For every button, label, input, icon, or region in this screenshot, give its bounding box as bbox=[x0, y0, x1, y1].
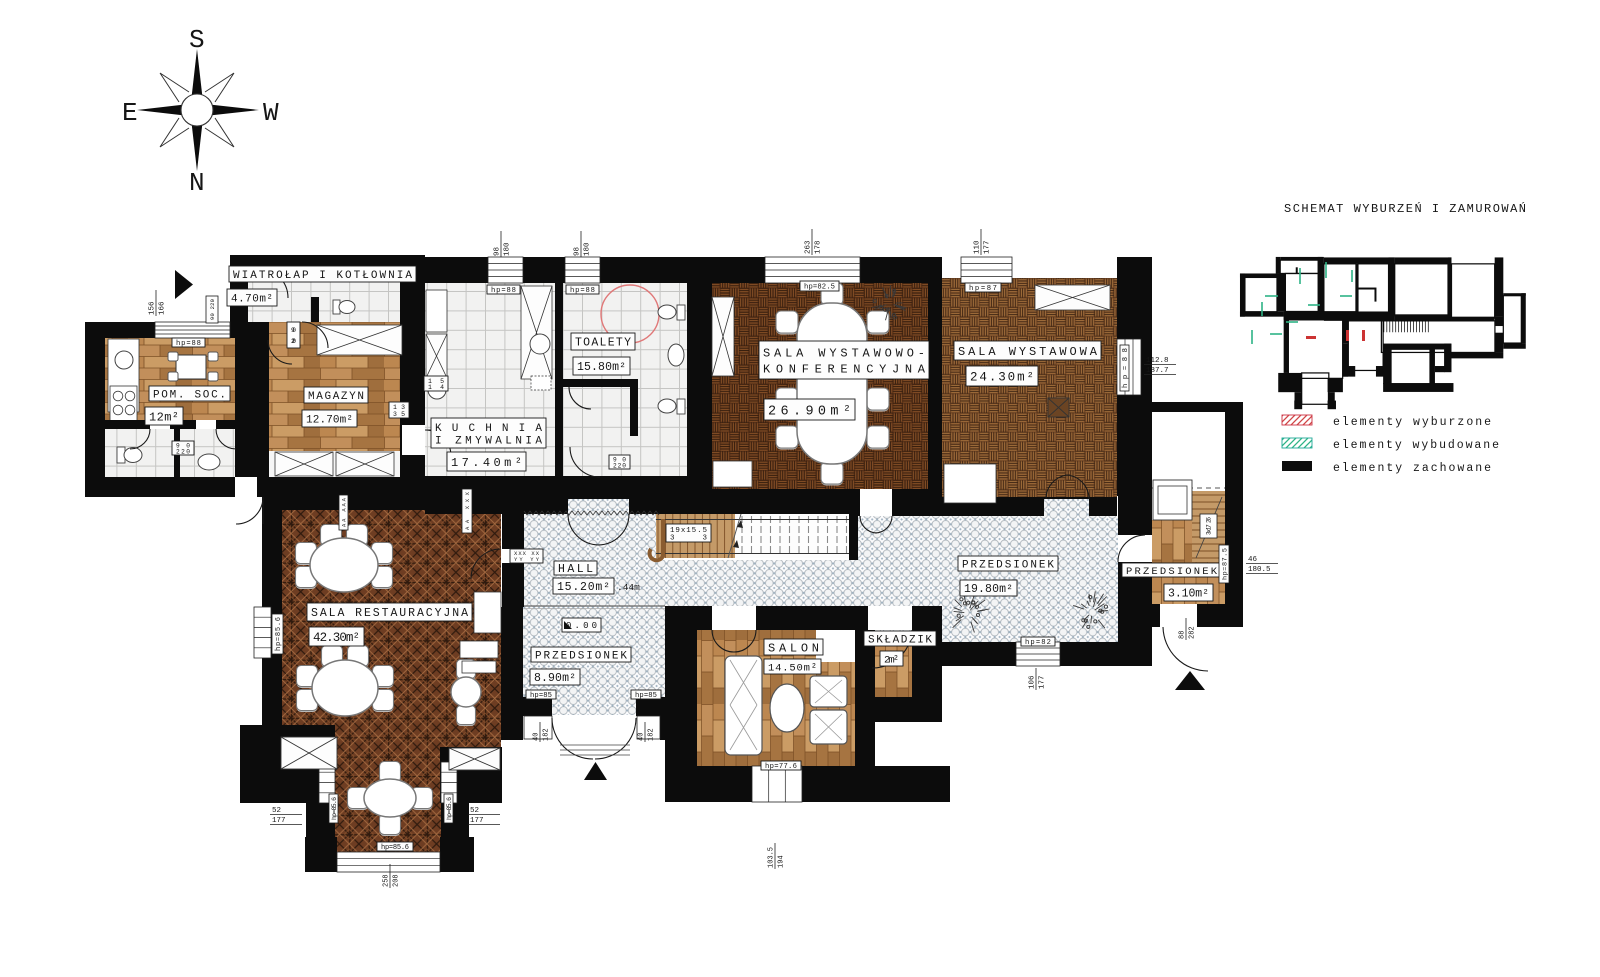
svg-text:182: 182 bbox=[543, 728, 551, 741]
svg-text:177: 177 bbox=[1039, 675, 1047, 689]
svg-text:19.80m²: 19.80m² bbox=[964, 583, 1013, 596]
svg-text:hp=85.6: hp=85.6 bbox=[446, 797, 453, 820]
svg-text:AA AAA: AA AAA bbox=[341, 497, 348, 527]
svg-text:E: E bbox=[122, 98, 138, 128]
svg-text:hp=85.6: hp=85.6 bbox=[275, 617, 283, 651]
svg-text:220: 220 bbox=[291, 338, 296, 345]
svg-text:POM. SOC.: POM. SOC. bbox=[153, 390, 226, 402]
svg-text:N: N bbox=[189, 168, 205, 198]
svg-text:SALA RESTAURACYJNA: SALA RESTAURACYJNA bbox=[311, 607, 468, 620]
svg-text:52: 52 bbox=[272, 807, 281, 815]
svg-text:hp=82.5: hp=82.5 bbox=[804, 284, 835, 292]
svg-text:15.80m²: 15.80m² bbox=[577, 361, 626, 374]
svg-text:PRZEDSIONEK: PRZEDSIONEK bbox=[535, 651, 627, 663]
svg-text:3.10m²: 3.10m² bbox=[1168, 588, 1209, 601]
svg-text:W: W bbox=[263, 98, 279, 128]
svg-text:12m²: 12m² bbox=[149, 410, 179, 424]
svg-text:hp=88: hp=88 bbox=[176, 340, 201, 348]
svg-text:180: 180 bbox=[504, 242, 512, 256]
svg-text:98: 98 bbox=[494, 247, 502, 256]
svg-text:90: 90 bbox=[291, 327, 296, 334]
svg-text:88: 88 bbox=[1179, 631, 1187, 639]
svg-text:194: 194 bbox=[778, 855, 786, 868]
svg-text:hp=82: hp=82 bbox=[1025, 639, 1051, 647]
svg-text:elementy zachowane: elementy zachowane bbox=[1333, 462, 1491, 475]
svg-text:hp=85: hp=85 bbox=[530, 692, 552, 700]
svg-text:hp=87: hp=87 bbox=[969, 285, 997, 293]
svg-text:220: 220 bbox=[613, 462, 626, 469]
svg-text:103.5: 103.5 bbox=[768, 847, 776, 868]
svg-text:elementy wyburzone: elementy wyburzone bbox=[1333, 416, 1491, 429]
svg-text:SKŁADZIK: SKŁADZIK bbox=[868, 635, 932, 647]
svg-text:187.7: 187.7 bbox=[1146, 367, 1169, 375]
svg-text:263: 263 bbox=[805, 240, 813, 254]
svg-text:TOALETY: TOALETY bbox=[575, 337, 631, 350]
svg-text:180: 180 bbox=[584, 242, 592, 256]
svg-text:3x17 26: 3x17 26 bbox=[1206, 517, 1213, 535]
svg-text:156: 156 bbox=[149, 301, 157, 315]
svg-text:S: S bbox=[189, 25, 205, 55]
svg-text:258: 258 bbox=[383, 874, 391, 887]
svg-text:PRZEDSIONEK: PRZEDSIONEK bbox=[962, 560, 1054, 572]
svg-text:40: 40 bbox=[638, 733, 646, 741]
svg-text:hp=85.6: hp=85.6 bbox=[331, 797, 338, 820]
svg-text:MAGAZYN: MAGAZYN bbox=[308, 391, 364, 403]
svg-text:177: 177 bbox=[272, 817, 286, 825]
svg-text:110: 110 bbox=[974, 240, 982, 254]
svg-text:46: 46 bbox=[1248, 556, 1258, 564]
svg-text:182: 182 bbox=[648, 728, 656, 741]
svg-text:hp=88: hp=88 bbox=[491, 287, 516, 295]
svg-text:220: 220 bbox=[176, 448, 190, 455]
svg-text:PRZEDSIONEK: PRZEDSIONEK bbox=[1126, 566, 1218, 578]
svg-text:hp=77.6: hp=77.6 bbox=[765, 763, 797, 771]
svg-text:I ZMYWALNIA: I ZMYWALNIA bbox=[435, 436, 542, 448]
svg-text:hp=87.5: hp=87.5 bbox=[1221, 548, 1229, 580]
svg-text:177: 177 bbox=[470, 817, 484, 825]
svg-text:14.50m²: 14.50m² bbox=[768, 662, 817, 674]
svg-text:hp=88: hp=88 bbox=[570, 287, 595, 295]
svg-text:90 220: 90 220 bbox=[209, 299, 216, 320]
svg-text:SALA WYSTAWOWO-: SALA WYSTAWOWO- bbox=[763, 347, 925, 361]
svg-text:40: 40 bbox=[533, 733, 541, 741]
svg-text:52: 52 bbox=[470, 807, 479, 815]
svg-text:177: 177 bbox=[984, 240, 992, 254]
svg-text:166: 166 bbox=[159, 301, 167, 315]
svg-text:24.30m²: 24.30m² bbox=[970, 371, 1034, 385]
svg-text:8.90m²: 8.90m² bbox=[534, 672, 576, 685]
svg-text:4.70m²: 4.70m² bbox=[231, 294, 273, 306]
svg-text:98: 98 bbox=[574, 247, 582, 256]
svg-text:282: 282 bbox=[1189, 626, 1197, 639]
svg-text:208: 208 bbox=[393, 874, 401, 887]
svg-text:112.8: 112.8 bbox=[1146, 357, 1169, 365]
svg-text:180.5: 180.5 bbox=[1248, 566, 1271, 574]
svg-text:15.20m²: 15.20m² bbox=[557, 581, 610, 594]
svg-text:SCHEMAT WYBURZEŃ I ZAMUROWAŃ: SCHEMAT WYBURZEŃ I ZAMUROWAŃ bbox=[1284, 201, 1526, 216]
svg-text:hp=85.6: hp=85.6 bbox=[381, 844, 409, 852]
svg-text:WIATROŁAP I KOTŁOWNIA: WIATROŁAP I KOTŁOWNIA bbox=[233, 270, 412, 282]
svg-text:.44m: .44m bbox=[617, 582, 640, 593]
svg-text:2m²: 2m² bbox=[884, 654, 899, 666]
svg-text:12.70m²: 12.70m² bbox=[306, 415, 353, 427]
svg-text:178: 178 bbox=[815, 240, 823, 254]
svg-text:17.40m²: 17.40m² bbox=[451, 456, 522, 470]
svg-text:hp=85: hp=85 bbox=[635, 692, 657, 700]
svg-text:106: 106 bbox=[1029, 675, 1037, 689]
svg-text:42.30m²: 42.30m² bbox=[313, 631, 360, 645]
